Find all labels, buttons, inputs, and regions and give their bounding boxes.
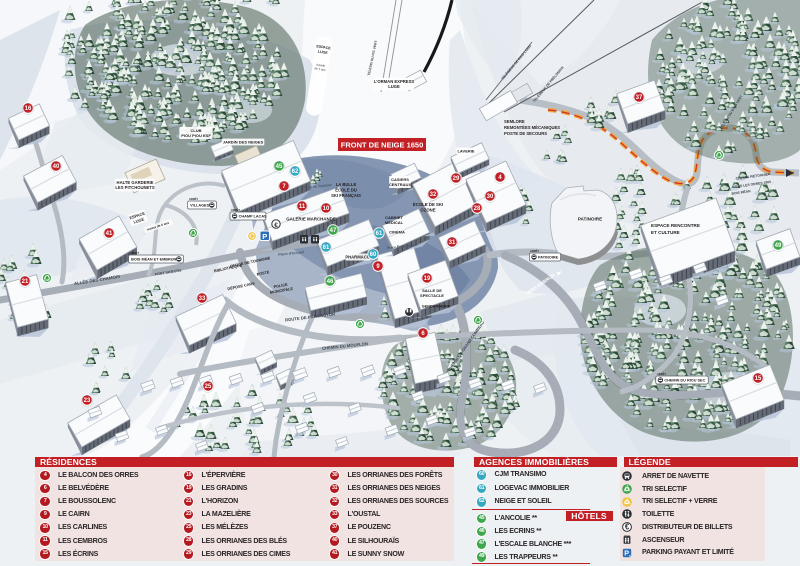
svg-text:P: P [262,232,267,241]
svg-text:VILLAGES: VILLAGES [190,204,209,208]
svg-text:PHARMACIE: PHARMACIE [345,255,371,260]
svg-text:€: € [624,523,629,532]
svg-text:CINÉMA: CINÉMA [389,230,405,235]
svg-text:LA BULLE: LA BULLE [336,182,357,187]
svg-text:25: 25 [205,384,212,390]
svg-text:31: 31 [449,240,456,246]
svg-text:ET CULTURE: ET CULTURE [651,230,680,235]
svg-text:€: € [274,222,278,229]
svg-text:62: 62 [292,169,299,175]
svg-text:16: 16 [25,106,32,112]
svg-text:40: 40 [53,164,60,170]
svg-text:28: 28 [474,206,481,212]
svg-text:PIOU PIOU ESF: PIOU PIOU ESF [181,133,211,138]
svg-text:MÉDICAL: MÉDICAL [385,220,404,225]
svg-text:CHEMIN DU RIOU SEC: CHEMIN DU RIOU SEC [664,379,705,383]
svg-text:ÉCOLE DU: ÉCOLE DU [335,188,357,193]
svg-text:POSTE DE SECOURS: POSTE DE SECOURS [504,131,547,136]
svg-text:11: 11 [299,204,306,210]
svg-text:SKI FRANÇAIS: SKI FRANÇAIS [331,193,361,198]
svg-text:61: 61 [376,231,383,237]
svg-text:61: 61 [323,245,330,251]
svg-text:10: 10 [323,206,330,212]
svg-text:33: 33 [199,296,206,302]
svg-text:FRONT DE NEIGE 1650: FRONT DE NEIGE 1650 [341,141,424,150]
svg-text:SEMLORE: SEMLORE [504,119,525,124]
svg-text:47: 47 [330,228,337,234]
svg-text:37: 37 [636,95,643,101]
svg-text:BOIS MÉAN ET EMBRUN: BOIS MÉAN ET EMBRUN [131,257,176,262]
svg-text:L'ORMAN EXPRESS: L'ORMAN EXPRESS [374,79,415,84]
svg-text:29: 29 [453,176,460,182]
svg-text:41: 41 [106,231,113,237]
svg-text:45: 45 [276,164,283,170]
svg-text:15: 15 [755,376,762,382]
svg-text:OZONE: OZONE [420,207,435,212]
svg-text:LUGE: LUGE [388,84,400,89]
svg-text:GALERIE MARCHANDE: GALERIE MARCHANDE [286,217,336,222]
svg-text:P: P [624,548,629,557]
svg-text:LES PITCHOUNETS: LES PITCHOUNETS [115,185,155,190]
svg-text:60: 60 [370,252,377,258]
svg-text:REMONTÉES MÉCANIQUES: REMONTÉES MÉCANIQUES [504,125,560,130]
svg-text:SPECTACLE: SPECTACLE [420,293,444,298]
svg-text:CHAMP LACAS: CHAMP LACAS [239,215,267,219]
svg-text:32: 32 [430,192,437,198]
svg-text:HALTE GARDERIE: HALTE GARDERIE [117,180,154,185]
svg-text:CENTRAUX: CENTRAUX [389,182,412,187]
svg-text:PATINOIRE: PATINOIRE [578,217,602,222]
svg-text:49: 49 [775,243,782,249]
svg-text:JARDIN DES NEIGES: JARDIN DES NEIGES [223,140,264,145]
svg-text:46: 46 [327,279,334,285]
svg-text:GENDARMERIE: GENDARMERIE [422,304,451,308]
svg-text:ÉCOLE DE SKI: ÉCOLE DE SKI [413,202,443,207]
svg-text:23: 23 [84,398,91,404]
svg-text:19: 19 [424,276,431,282]
svg-text:30: 30 [487,194,494,200]
svg-text:LAVERIE: LAVERIE [457,149,474,154]
svg-text:ESPACE RENCONTRE: ESPACE RENCONTRE [651,223,700,228]
svg-text:21: 21 [22,279,29,285]
svg-text:PATINOIRE: PATINOIRE [538,256,559,260]
